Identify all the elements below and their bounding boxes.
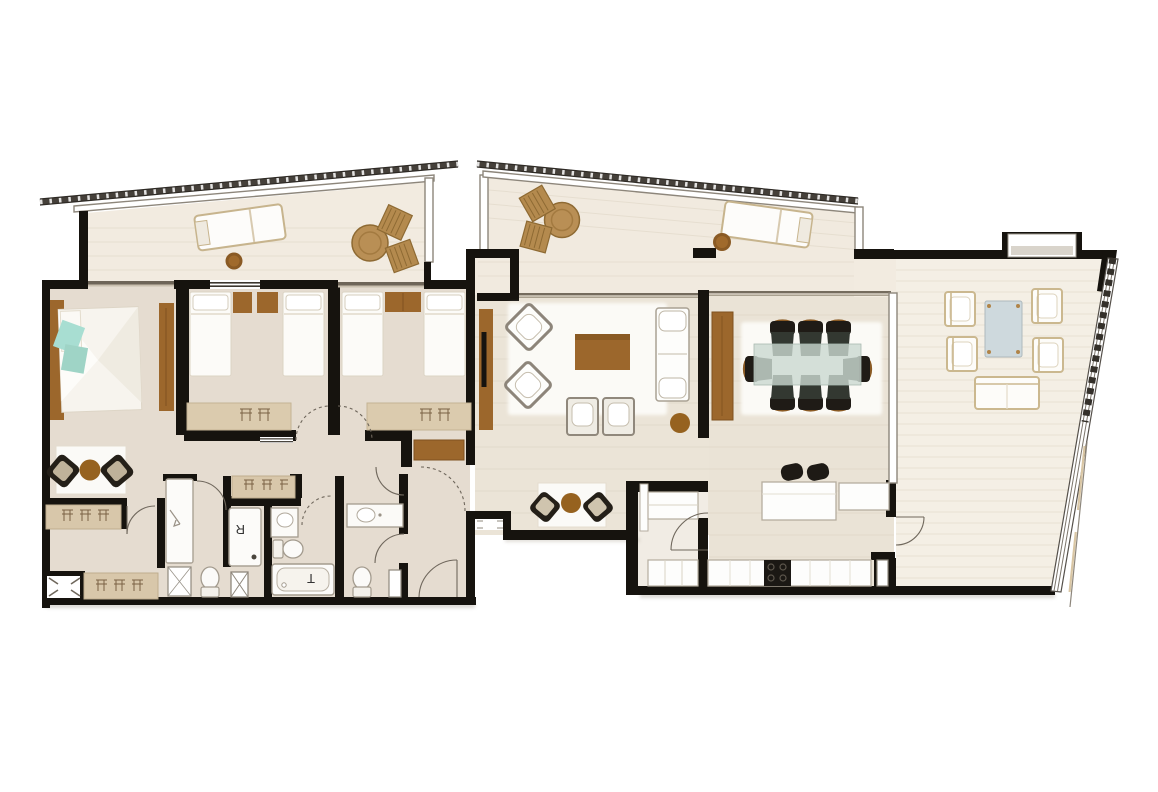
- svg-text:R: R: [236, 522, 245, 537]
- svg-text:T: T: [307, 571, 315, 586]
